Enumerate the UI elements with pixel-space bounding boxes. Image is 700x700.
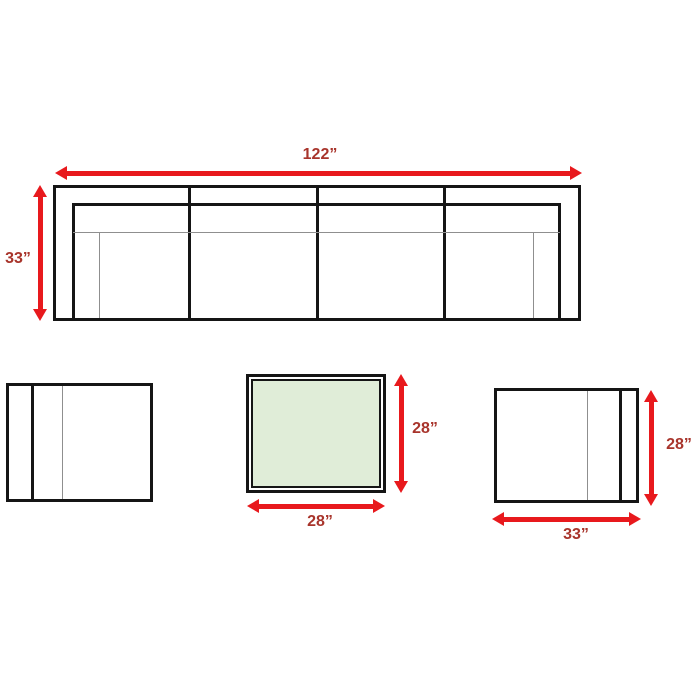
sofa-width-arrow (55, 166, 582, 180)
coffee-table-height-label: 28” (407, 421, 443, 437)
sofa-inner-outline (72, 203, 561, 318)
arrow-shaft (649, 402, 654, 494)
armchair-right-height-arrow (644, 390, 658, 506)
armchair-right-arm-divider (619, 391, 622, 500)
arrowhead-right (570, 166, 582, 180)
armchair-right-width-arrow (492, 512, 641, 526)
arrow-shaft (38, 197, 43, 309)
arrow-shaft (399, 386, 404, 481)
armchair-left-cushion-line (62, 386, 63, 499)
coffee-table-width-arrow (247, 499, 385, 513)
arrowhead-left (55, 166, 67, 180)
sofa-right-arm-line (533, 232, 534, 318)
sofa-height-arrow (33, 185, 47, 321)
coffee-table-outline (246, 374, 386, 493)
sofa-width-label: 122” (288, 147, 352, 163)
arrowhead-up (394, 374, 408, 386)
armchair-right-cushion-line (587, 391, 588, 500)
furniture-dimension-diagram: 122” 33” 28” 28” (0, 0, 700, 700)
arrowhead-left (247, 499, 259, 513)
armchair-right-height-label: 28” (661, 437, 697, 453)
armchair-right-outline (494, 388, 639, 503)
arrowhead-right (629, 512, 641, 526)
armchair-left-outline (6, 383, 153, 502)
coffee-table-glass-top (251, 379, 381, 488)
arrowhead-up (33, 185, 47, 197)
arrow-shaft (67, 171, 570, 176)
sofa-left-arm-line (99, 232, 100, 318)
arrowhead-left (492, 512, 504, 526)
sofa-height-label: 33” (2, 251, 34, 267)
coffee-table-width-label: 28” (298, 514, 342, 530)
arrowhead-up (644, 390, 658, 402)
sofa-outline (53, 185, 581, 321)
arrowhead-right (373, 499, 385, 513)
coffee-table-height-arrow (394, 374, 408, 493)
arrow-shaft (504, 517, 629, 522)
sofa-seat-line (73, 232, 560, 233)
arrowhead-down (644, 494, 658, 506)
arrowhead-down (394, 481, 408, 493)
armchair-right-width-label: 33” (554, 527, 598, 543)
arrow-shaft (259, 504, 373, 509)
arrowhead-down (33, 309, 47, 321)
armchair-left-arm-divider (31, 386, 34, 499)
